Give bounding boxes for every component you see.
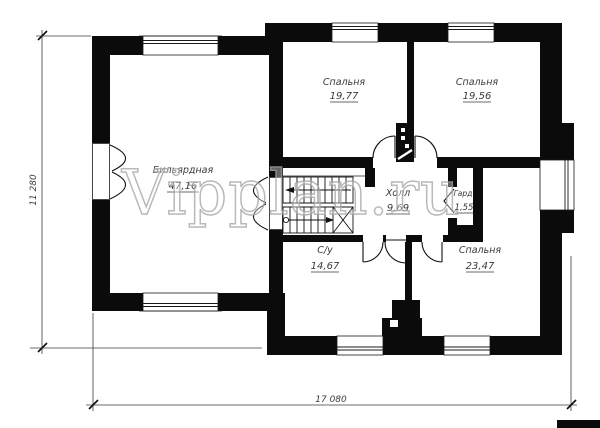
room-name: Спальня [459, 245, 502, 256]
room-label-bedroom-1: Спальня 19,77 [323, 77, 366, 102]
door-bedroom-3 [422, 242, 442, 262]
door-hall-corner [385, 240, 406, 263]
room-area: 19,56 [463, 91, 492, 102]
room-label-bedroom-2: Спальня 19,56 [456, 77, 499, 102]
window-right-bay [540, 160, 574, 210]
door-entry-left-french [92, 143, 126, 200]
room-area: 19,77 [330, 91, 359, 102]
window-bottom-bathroom [337, 336, 383, 355]
room-name: Спальня [323, 77, 366, 88]
window-top-right [448, 23, 494, 42]
room-area: 14,67 [311, 261, 340, 272]
door-bedroom-2 [415, 136, 437, 158]
watermark-text: Vipplan.ru [121, 156, 461, 229]
chimney-shaft-bottom [382, 300, 422, 336]
floor-plan-drawing: Бильярдная 47,16 Спальня 19,77 Спальня 1… [0, 0, 600, 428]
room-name: Спальня [456, 77, 499, 88]
dimension-value-vertical: 11 280 [29, 174, 39, 206]
scan-artifact [557, 420, 600, 428]
room-label-bedroom-3: Спальня 23,47 [459, 245, 502, 272]
window-top-left [139, 36, 222, 55]
dimension-value-horizontal: 17 080 [315, 395, 347, 405]
room-area: 23,47 [466, 261, 495, 272]
dimension-horizontal-bottom: 17 080 [86, 256, 577, 411]
door-bathroom [363, 242, 383, 262]
window-bottom-left [139, 293, 222, 311]
door-bedroom-1 [373, 136, 395, 158]
window-bottom-bedroom [444, 336, 490, 355]
room-name: С/у [317, 245, 333, 256]
floor-plan-page: Бильярдная 47,16 Спальня 19,77 Спальня 1… [0, 0, 600, 428]
room-label-bathroom: С/у 14,67 [311, 245, 340, 272]
window-top-middle [332, 23, 378, 42]
